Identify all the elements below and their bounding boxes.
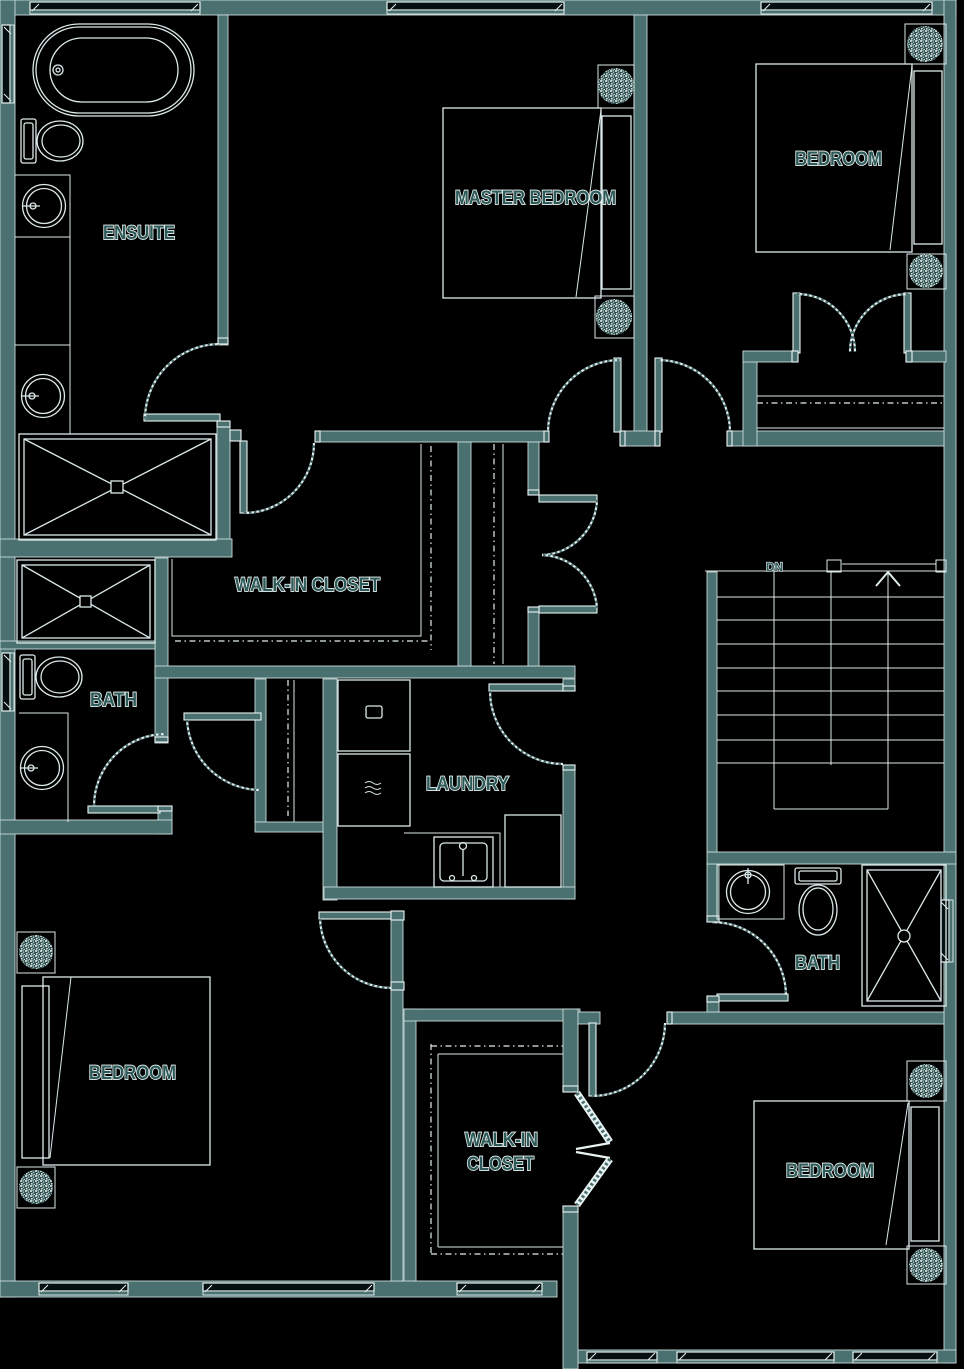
svg-text:WALK-IN: WALK-IN [465, 1130, 538, 1151]
svg-text:BATH: BATH [90, 690, 137, 711]
svg-text:WALK-IN CLOSET: WALK-IN CLOSET [235, 575, 380, 596]
svg-text:LAUNDRY: LAUNDRY [426, 774, 509, 795]
svg-text:BEDROOM: BEDROOM [786, 1161, 874, 1182]
svg-text:BEDROOM: BEDROOM [795, 149, 882, 170]
svg-text:BEDROOM: BEDROOM [89, 1063, 176, 1084]
svg-text:DN: DN [766, 560, 783, 574]
svg-text:MASTER BEDROOM: MASTER BEDROOM [455, 188, 616, 209]
svg-text:CLOSET: CLOSET [467, 1154, 534, 1175]
svg-text:BATH: BATH [795, 953, 840, 974]
svg-text:ENSUITE: ENSUITE [103, 223, 175, 244]
